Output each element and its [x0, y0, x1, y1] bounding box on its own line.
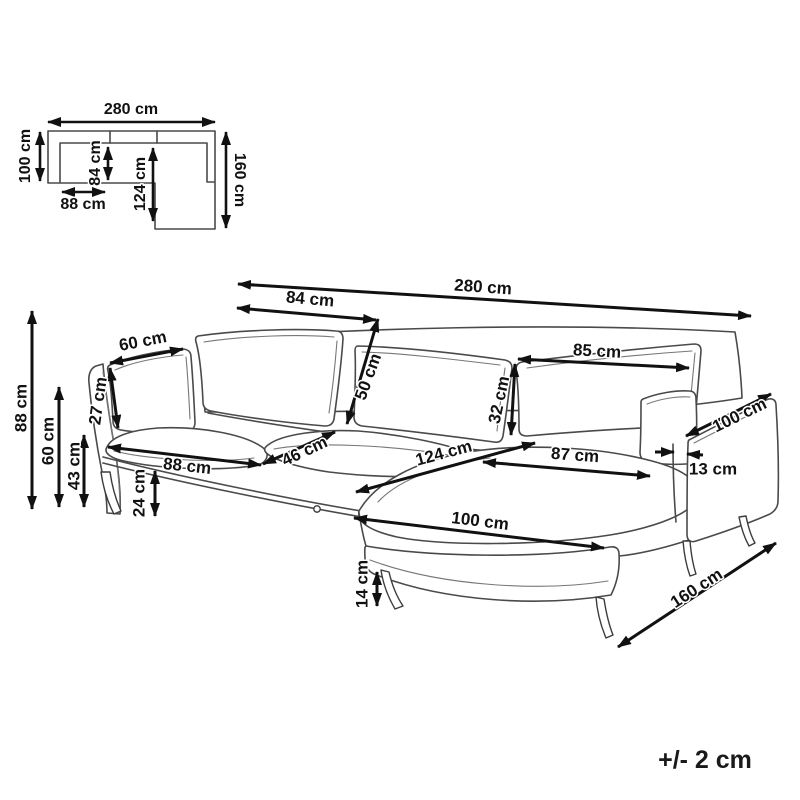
dimension-label: 160 cm	[667, 564, 726, 611]
dimension-line	[237, 308, 376, 320]
base-rail-right	[619, 540, 689, 556]
dimension-label: 14 cm	[352, 560, 371, 608]
dimension-label: 13 cm	[689, 459, 737, 478]
dimension-label: 124 cm	[132, 157, 149, 211]
dimension-label: 43 cm	[64, 442, 83, 490]
dimension-label: 88 cm	[60, 196, 105, 213]
dimension-label: 84 cm	[285, 287, 335, 310]
dimension-label: 87 cm	[550, 444, 599, 466]
dimension-label: 160 cm	[231, 153, 248, 207]
dimension-label: 60 cm	[117, 327, 168, 355]
dimension-label: 280 cm	[454, 275, 513, 298]
back-cushion-left	[196, 330, 343, 426]
dimension-label: 60 cm	[38, 417, 57, 465]
dimension-label: 280 cm	[104, 101, 158, 118]
dimension-label: 100 cm	[17, 129, 34, 183]
chaise-right-leg	[596, 597, 613, 638]
dimension-label: 88 cm	[162, 454, 212, 478]
dimension-label: 88 cm	[11, 384, 30, 432]
panel-front-leg	[683, 541, 696, 576]
tolerance-note: +/- 2 cm	[620, 746, 790, 775]
chaise-base	[365, 546, 619, 601]
dimension-label: 24 cm	[129, 469, 148, 517]
dimension-label: 84 cm	[87, 140, 104, 185]
sofa-dimension-diagram: 280 cm100 cm160 cm84 cm124 cm88 cm 280 c…	[0, 0, 800, 800]
middle-leg-cap	[314, 506, 320, 512]
dimension-label: 85 cm	[572, 340, 621, 361]
dimension-line	[687, 454, 703, 455]
dimension-diagram-canvas: 280 cm100 cm160 cm84 cm124 cm88 cm 280 c…	[0, 0, 800, 800]
